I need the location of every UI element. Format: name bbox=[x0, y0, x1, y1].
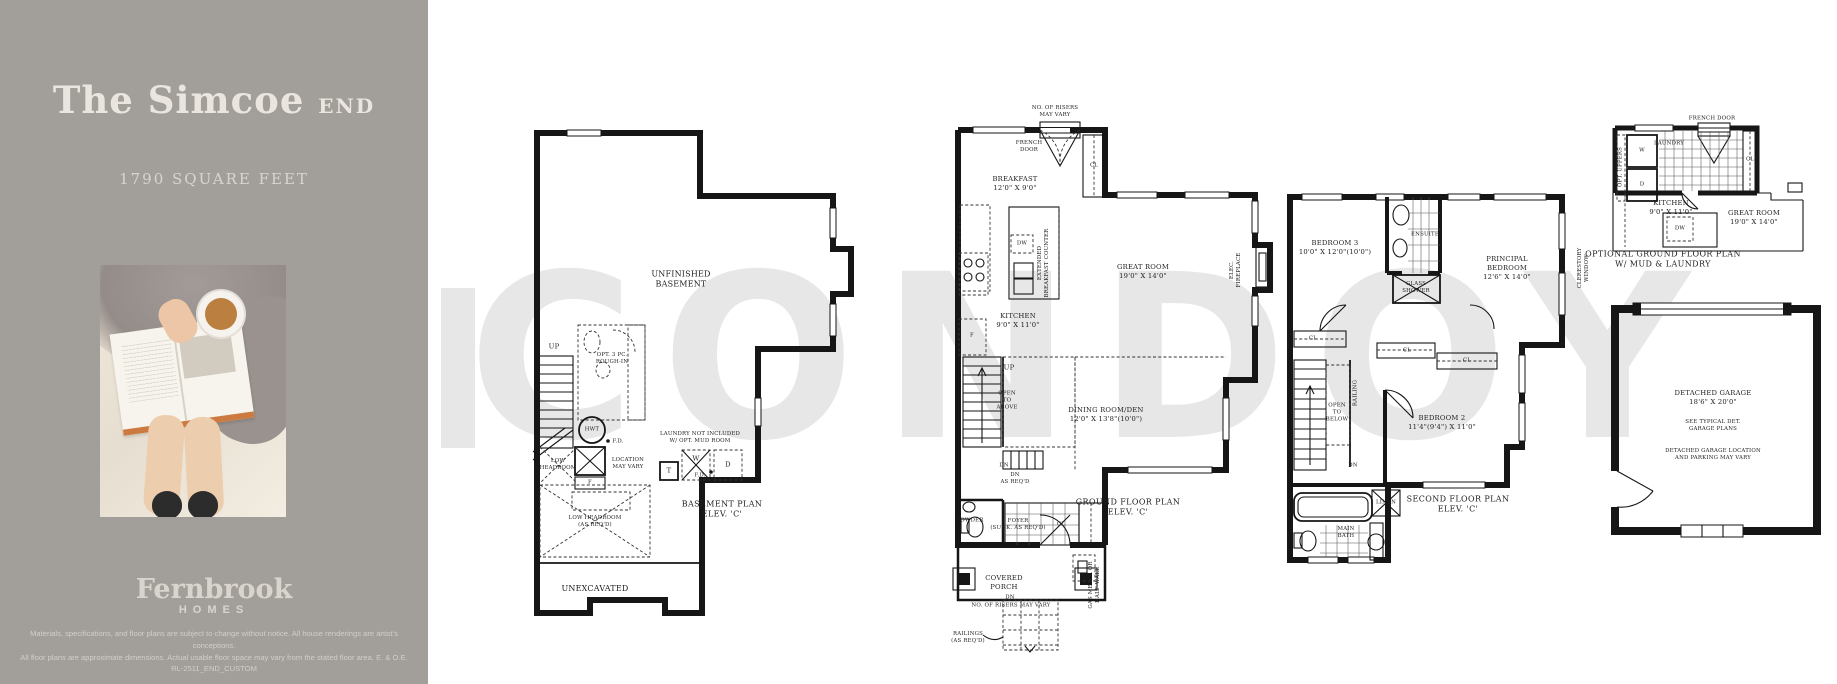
label-opt-bath: OPT. 3 PC. ROUGH-IN bbox=[596, 352, 628, 366]
fireplace-glyph bbox=[1256, 247, 1268, 287]
sidebar: The Simcoe END 1790 SQUARE FEET Fernbroo… bbox=[0, 0, 428, 684]
square-footage: 1790 SQUARE FEET bbox=[0, 170, 428, 188]
label-detached-garage: DETACHED GARAGE 18'6" X 20'0" bbox=[1675, 389, 1752, 407]
page: CONDOY The Simcoe END 1790 SQUARE FEET bbox=[0, 0, 1837, 684]
garage-window bbox=[1681, 525, 1743, 537]
second-floor-plan: BEDROOM 3 10'0" X 12'0"(10'0") ENSUITE G… bbox=[1280, 155, 1600, 570]
label-location-may-vary: LOCATION MAY VARY bbox=[612, 457, 644, 471]
photo-shoe bbox=[152, 491, 182, 517]
covered-porch bbox=[953, 545, 1105, 600]
label-opt-uppers: OPT. UPPERS bbox=[1617, 147, 1624, 187]
label-glass-shower: GLASS SHOWER bbox=[1402, 281, 1430, 295]
disclaimer-line2: All floor plans are approximate dimensio… bbox=[20, 653, 407, 674]
main-bath bbox=[1290, 485, 1400, 560]
label-dining: DINING ROOM/DEN 12'0" X 13'8"(10'0") bbox=[1068, 406, 1143, 424]
label-up: UP bbox=[549, 343, 560, 352]
label-furnace: F bbox=[588, 479, 592, 486]
label-hwt: HWT bbox=[585, 426, 599, 433]
optional-plan: FRENCH DOOR LAUNDRY W D OPT. UPPERS CL K… bbox=[1605, 105, 1837, 275]
label-cl3: CL bbox=[1463, 357, 1471, 364]
label-risers-bottom: NO. OF RISERS MAY VARY bbox=[971, 602, 1050, 609]
label-low-headroom-2: LOW HEADROOM (AS REQ'D) bbox=[569, 515, 622, 529]
label-railing: RAILING bbox=[1352, 380, 1359, 406]
label-open-to-above: OPEN TO ABOVE bbox=[996, 390, 1017, 411]
model-suffix: END bbox=[318, 94, 375, 118]
disclaimer: Materials, specifications, and floor pla… bbox=[14, 628, 414, 675]
bedroom2-wall bbox=[1385, 390, 1413, 485]
label-tub: T bbox=[667, 467, 672, 476]
ground-caption: GROUND FLOOR PLAN ELEV. 'C' bbox=[1076, 498, 1181, 519]
label-cl-foyer: CL bbox=[1057, 521, 1065, 528]
label-powder: POWDER bbox=[956, 517, 983, 524]
label-cl-top: CL bbox=[1090, 162, 1098, 169]
label-bedroom2: BEDROOM 2 11'4"(9'4") X 11'0" bbox=[1408, 414, 1476, 432]
label-bedroom3: BEDROOM 3 10'0" X 12'0"(10'0") bbox=[1299, 239, 1371, 257]
label-unexcavated: UNEXCAVATED bbox=[561, 584, 628, 594]
ground-floor-plan: NO. OF RISERS MAY VARY FRENCH DOOR BREAK… bbox=[945, 95, 1275, 684]
label-railings: RAILINGS (AS REQ'D) bbox=[951, 631, 985, 645]
label-low-headroom: LOW HEADROOM bbox=[540, 458, 577, 472]
garage-door bbox=[1633, 303, 1791, 315]
garage-plan: DETACHED GARAGE 18'6" X 20'0" SEE TYPICA… bbox=[1605, 295, 1830, 540]
model-name: The Simcoe bbox=[53, 78, 305, 122]
label-cl-opt: CL bbox=[1746, 156, 1754, 163]
label-ensuite: ENSUITE bbox=[1411, 231, 1439, 238]
label-laundry-note: LAUNDRY NOT INCLUDED W/ OPT. MUD ROOM bbox=[660, 431, 740, 445]
label-dn-as-reqd: DN AS REQ'D bbox=[1000, 472, 1029, 486]
label-cl2: CL bbox=[1403, 347, 1411, 354]
label-elec-fireplace: ELEC. FIREPLACE bbox=[1229, 251, 1243, 290]
label-kitchen: KITCHEN 9'0" X 11'0" bbox=[996, 312, 1039, 330]
logo-sub: HOMES bbox=[0, 604, 428, 616]
label-unfinished-basement: UNFINISHED BASEMENT bbox=[651, 270, 710, 291]
label-french-door-opt: FRENCH DOOR bbox=[1689, 115, 1735, 122]
label-fd: F.D. bbox=[612, 438, 623, 445]
photo-coffee bbox=[205, 298, 237, 330]
label-covered-porch: COVERED PORCH bbox=[985, 574, 1022, 592]
page-title: The Simcoe END bbox=[0, 78, 428, 122]
optional-windows bbox=[1635, 125, 1673, 131]
label-up: UP bbox=[1004, 364, 1015, 373]
photo-mug bbox=[198, 291, 244, 337]
optional-caption: OPTIONAL GROUND FLOOR PLAN W/ MUD & LAUN… bbox=[1585, 250, 1741, 271]
label-washer: W bbox=[692, 455, 699, 464]
basement-opt-bath bbox=[578, 325, 645, 420]
label-foyer: FOYER (SUNK. AS REQ'D) bbox=[990, 518, 1045, 532]
label-great-room-opt: GREAT ROOM 19'0" X 14'0" bbox=[1728, 209, 1780, 227]
label-extended-counter: EXTENDED BREAKFAST COUNTER bbox=[1037, 229, 1051, 298]
photo-shoe bbox=[188, 491, 218, 517]
basement-walls bbox=[537, 133, 851, 613]
ground-stairs bbox=[963, 357, 1075, 469]
label-fd2: F.D. bbox=[694, 472, 705, 479]
photo-book-text bbox=[121, 336, 179, 402]
label-garage-note1: SEE TYPICAL DET. GARAGE PLANS bbox=[1685, 419, 1740, 433]
label-risers-top: NO. OF RISERS MAY VARY bbox=[1032, 105, 1078, 119]
lifestyle-photo bbox=[100, 265, 286, 517]
label-french-door: FRENCH DOOR bbox=[1016, 140, 1042, 154]
label-great-room: GREAT ROOM 19'0" X 14'0" bbox=[1117, 263, 1169, 281]
label-open-to-below: OPEN TO BELOW bbox=[1326, 402, 1348, 423]
label-breakfast: BREAKFAST 12'0" X 9'0" bbox=[992, 175, 1037, 193]
disclaimer-line1: Materials, specifications, and floor pla… bbox=[30, 629, 398, 650]
garage-man-door bbox=[1617, 471, 1653, 507]
label-kitchen-opt: KITCHEN 9'0" X 11'0" bbox=[1649, 199, 1692, 217]
label-main-bath: MAIN BATH bbox=[1337, 526, 1354, 540]
label-washer-opt: W bbox=[1639, 147, 1645, 154]
optional-stoop bbox=[1698, 123, 1730, 163]
label-linen: LINEN bbox=[1376, 499, 1396, 506]
label-garage-note2: DETACHED GARAGE LOCATION AND PARKING MAY… bbox=[1665, 448, 1761, 462]
label-dn-porch: DN bbox=[1005, 594, 1014, 601]
optional-walls bbox=[1615, 128, 1757, 193]
label-fridge: F bbox=[970, 332, 974, 339]
logo-name: Fernbrook bbox=[0, 576, 428, 603]
label-dn: DN bbox=[999, 462, 1008, 469]
basement-caption: BASEMENT PLAN ELEV. 'C' bbox=[682, 500, 763, 521]
label-gas-meter: GAS METER OR HALF WALL bbox=[1088, 561, 1102, 608]
second-caption: SECOND FLOOR PLAN ELEV. 'C' bbox=[1407, 495, 1510, 516]
fernbrook-logo: Fernbrook HOMES bbox=[0, 576, 428, 616]
garage-linework bbox=[1605, 295, 1830, 540]
french-door-swing bbox=[1040, 130, 1080, 166]
label-principal-bedroom: PRINCIPAL BEDROOM 12'6" X 14'0" bbox=[1483, 255, 1531, 281]
basement-linework bbox=[515, 108, 875, 640]
label-dryer-opt: D bbox=[1640, 181, 1645, 188]
label-dryer: D bbox=[725, 461, 731, 470]
label-dw: DW bbox=[1017, 240, 1027, 247]
label-dw-opt: DW bbox=[1675, 225, 1685, 232]
label-cl1: CL bbox=[1309, 335, 1317, 342]
basement-plan: UNFINISHED BASEMENT UP OPT. 3 PC. ROUGH-… bbox=[515, 108, 875, 640]
label-dn: DN bbox=[1348, 462, 1357, 469]
label-laundry: LAUNDRY bbox=[1654, 140, 1684, 147]
